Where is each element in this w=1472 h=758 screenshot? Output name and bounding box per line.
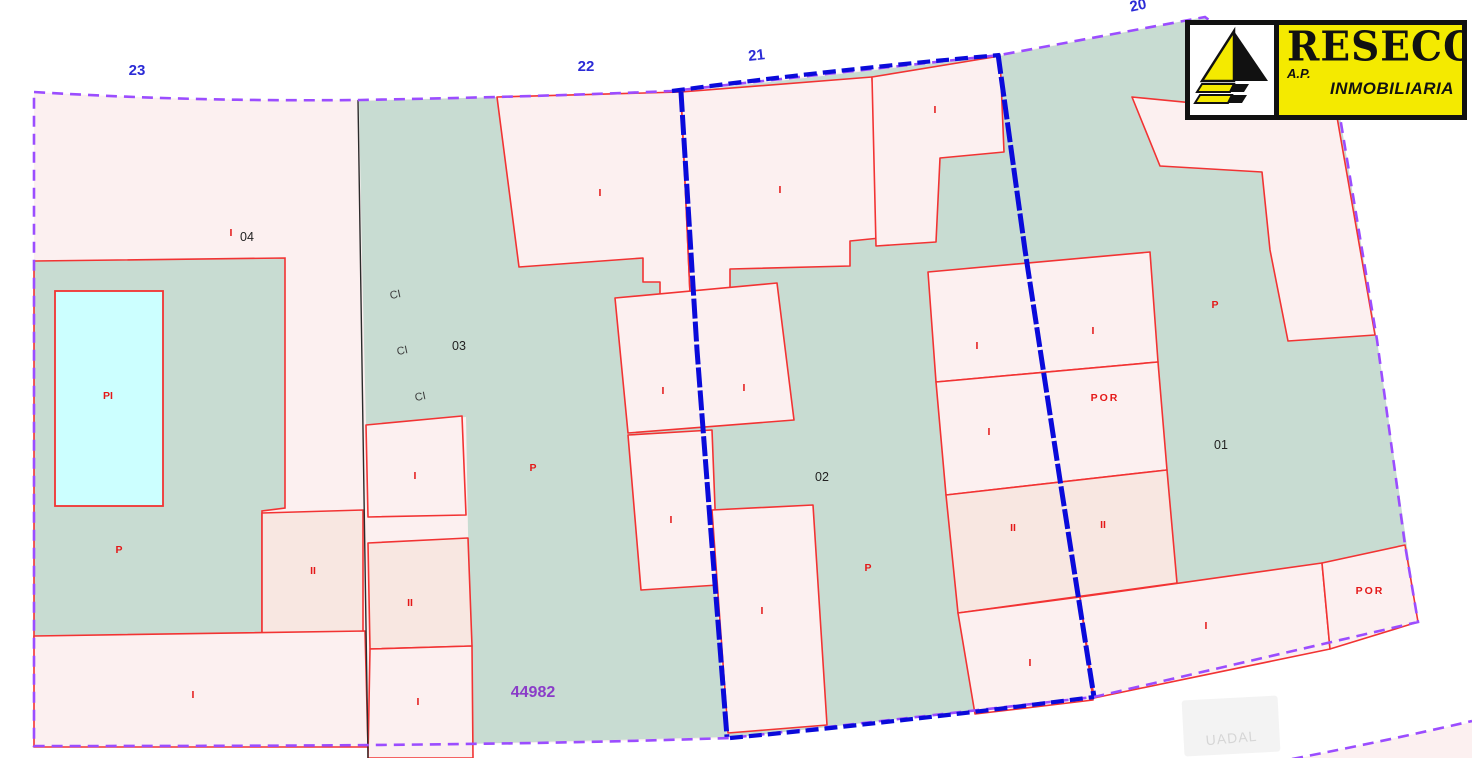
label-i: I xyxy=(779,184,782,196)
label-i: I xyxy=(1029,657,1032,669)
building-center-square xyxy=(615,283,794,433)
label-04: 04 xyxy=(240,230,254,244)
logo-inmobiliaria: INMOBILIARIA xyxy=(1330,80,1454,98)
building-col-left-cell-bottom xyxy=(368,646,473,758)
label-p: P xyxy=(1211,299,1218,311)
label-44982: 44982 xyxy=(511,684,556,701)
building-col-left-cell-I xyxy=(366,416,466,517)
label-i: I xyxy=(417,696,420,708)
label-i: I xyxy=(988,426,991,438)
agency-logo: RESECO A.P. INMOBILIARIA xyxy=(1185,20,1467,120)
label-i: I xyxy=(934,104,937,116)
label-i: I xyxy=(743,382,746,394)
label-i: I xyxy=(230,227,233,239)
label-pi: PI xyxy=(103,390,113,402)
label-21: 21 xyxy=(747,46,765,65)
label-i: I xyxy=(599,187,602,199)
label-02: 02 xyxy=(815,470,829,484)
label-22: 22 xyxy=(578,58,595,75)
label-i: I xyxy=(1205,620,1208,632)
label-p: P xyxy=(529,462,536,474)
pyramid-icon xyxy=(1190,25,1279,115)
logo-text-panel: RESECO A.P. INMOBILIARIA xyxy=(1279,25,1462,115)
label-i: I xyxy=(761,605,764,617)
label-20: 20 xyxy=(1128,0,1148,16)
label-ii: II xyxy=(1010,522,1016,534)
label-01: 01 xyxy=(1214,438,1228,452)
label-por: POR xyxy=(1356,585,1385,597)
label-p: P xyxy=(864,562,871,574)
label-ii: II xyxy=(407,597,413,609)
street-name-text: UADAL xyxy=(1205,728,1258,748)
label-i: I xyxy=(662,385,665,397)
label-por: POR xyxy=(1091,392,1120,404)
label-ii: II xyxy=(310,565,316,577)
building-por-corner xyxy=(1322,545,1418,649)
building-col-left-cell-II xyxy=(368,538,472,649)
logo-name: RESECO xyxy=(1287,26,1454,68)
label-23: 23 xyxy=(129,62,146,79)
building-bottom-strip-parcel04 xyxy=(34,631,368,747)
label-03: 03 xyxy=(452,339,466,353)
label-ii: II xyxy=(1100,519,1106,531)
label-i: I xyxy=(670,514,673,526)
label-p: P xyxy=(115,544,122,556)
building-col-row4 xyxy=(958,597,1093,714)
label-i: I xyxy=(976,340,979,352)
cadastral-map-page: 2322212004030201CICICI44982IIIIPIIIIIIII… xyxy=(0,0,1472,758)
label-i: I xyxy=(192,689,195,701)
building-center-tall-right xyxy=(712,505,827,733)
label-i: I xyxy=(414,470,417,482)
street-name-watermark: UADAL xyxy=(1182,696,1281,757)
label-i: I xyxy=(1092,325,1095,337)
